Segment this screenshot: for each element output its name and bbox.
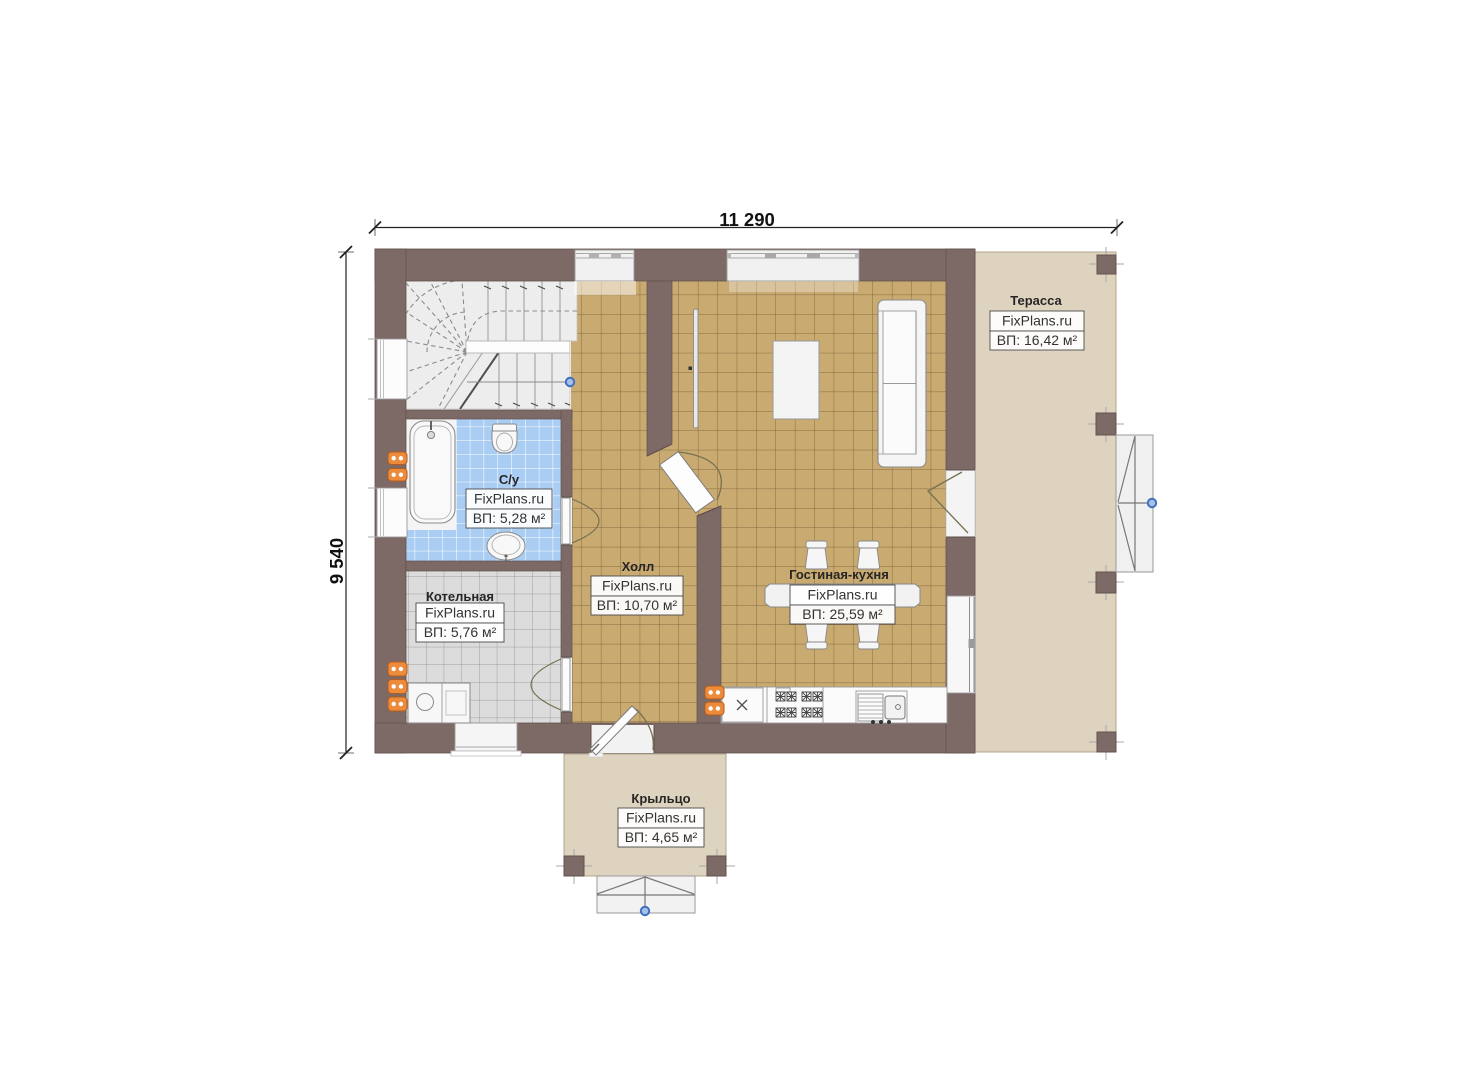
svg-text:Холл: Холл [622, 559, 655, 574]
svg-text:FixPlans.ru: FixPlans.ru [626, 810, 696, 826]
svg-text:ВП: 5,76 м²: ВП: 5,76 м² [424, 624, 497, 640]
svg-text:ВП: 10,70 м²: ВП: 10,70 м² [597, 597, 678, 613]
svg-text:ВП: 5,28 м²: ВП: 5,28 м² [473, 510, 546, 526]
svg-text:ВП: 4,65 м²: ВП: 4,65 м² [625, 829, 698, 845]
svg-text:FixPlans.ru: FixPlans.ru [1002, 313, 1072, 329]
svg-text:Котельная: Котельная [426, 589, 494, 604]
svg-text:Гостиная-кухня: Гостиная-кухня [789, 567, 889, 582]
svg-text:9 540: 9 540 [326, 538, 347, 584]
svg-text:11 290: 11 290 [719, 209, 775, 230]
svg-text:ВП: 16,42 м²: ВП: 16,42 м² [997, 332, 1078, 348]
svg-text:FixPlans.ru: FixPlans.ru [807, 587, 877, 603]
svg-text:Крыльцо: Крыльцо [631, 791, 690, 806]
svg-text:С/у: С/у [499, 472, 520, 487]
svg-text:ВП: 25,59 м²: ВП: 25,59 м² [802, 606, 883, 622]
svg-text:FixPlans.ru: FixPlans.ru [602, 578, 672, 594]
svg-text:FixPlans.ru: FixPlans.ru [474, 491, 544, 507]
svg-text:FixPlans.ru: FixPlans.ru [425, 605, 495, 621]
svg-text:Терасса: Терасса [1010, 293, 1062, 308]
